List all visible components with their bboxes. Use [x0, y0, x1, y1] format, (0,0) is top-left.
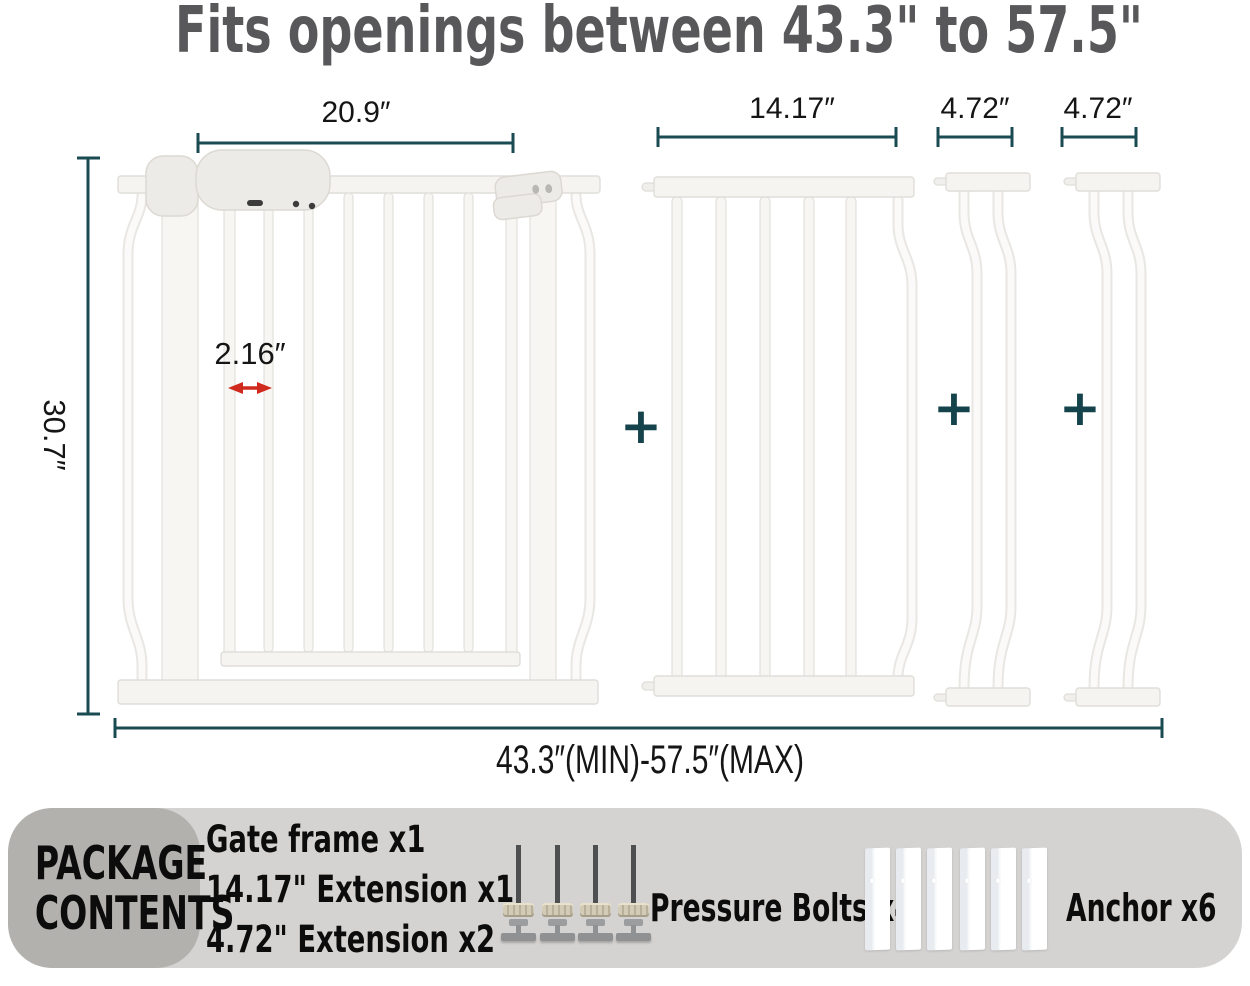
pressure-bolt-icon: [500, 845, 537, 943]
plus-icon: +: [932, 386, 976, 430]
anchor-icon: [865, 848, 890, 951]
total-width-range-label: 43.3″(MIN)-57.5″(MAX): [421, 738, 879, 783]
gate-width-label: 20.9″: [256, 96, 456, 130]
gate-height-label: 30.7″: [38, 372, 72, 498]
package-heading-line2: CONTENTS: [35, 888, 173, 938]
anchor-icon: [960, 848, 985, 951]
package-item: 4.72" Extension x2: [206, 915, 514, 965]
package-band: PACKAGE CONTENTS Gate frame x1 14.17" Ex…: [8, 808, 1242, 968]
plus-icon: +: [1058, 386, 1102, 430]
pressure-bolt-icon: [577, 845, 614, 943]
ext-small-width-label-1: 4.72″: [905, 92, 1045, 126]
package-item: Gate frame x1: [206, 815, 514, 865]
gate-door: [221, 193, 520, 666]
anchor-icon: [991, 848, 1016, 951]
gate-handle: [146, 150, 330, 216]
extension-panel-14in: [642, 177, 914, 696]
product-dimension-diagram: Fits openings between 43.3" to 57.5": [0, 0, 1250, 986]
gate-frame: [118, 150, 600, 704]
anchor-icon: [927, 848, 952, 951]
extension-panel-4in-second: [1064, 173, 1160, 706]
plus-icon: +: [619, 404, 663, 448]
ext-large-width-label: 14.17″: [692, 92, 892, 126]
ext-small-width-label-2: 4.72″: [1028, 92, 1168, 126]
anchor-icon: [1022, 848, 1047, 951]
pressure-bolt-icon: [615, 845, 652, 943]
extension-panel-4in-first: [934, 173, 1030, 706]
package-heading-line1: PACKAGE: [35, 838, 173, 888]
package-item: 14.17" Extension x1: [206, 865, 514, 915]
package-contents-box: PACKAGE CONTENTS: [8, 808, 200, 968]
bar-gap-label: 2.16″: [190, 336, 310, 372]
anchor-icon: [896, 848, 921, 951]
pressure-bolt-icon: [539, 845, 576, 943]
anchor-label: Anchor x6: [1066, 886, 1217, 930]
